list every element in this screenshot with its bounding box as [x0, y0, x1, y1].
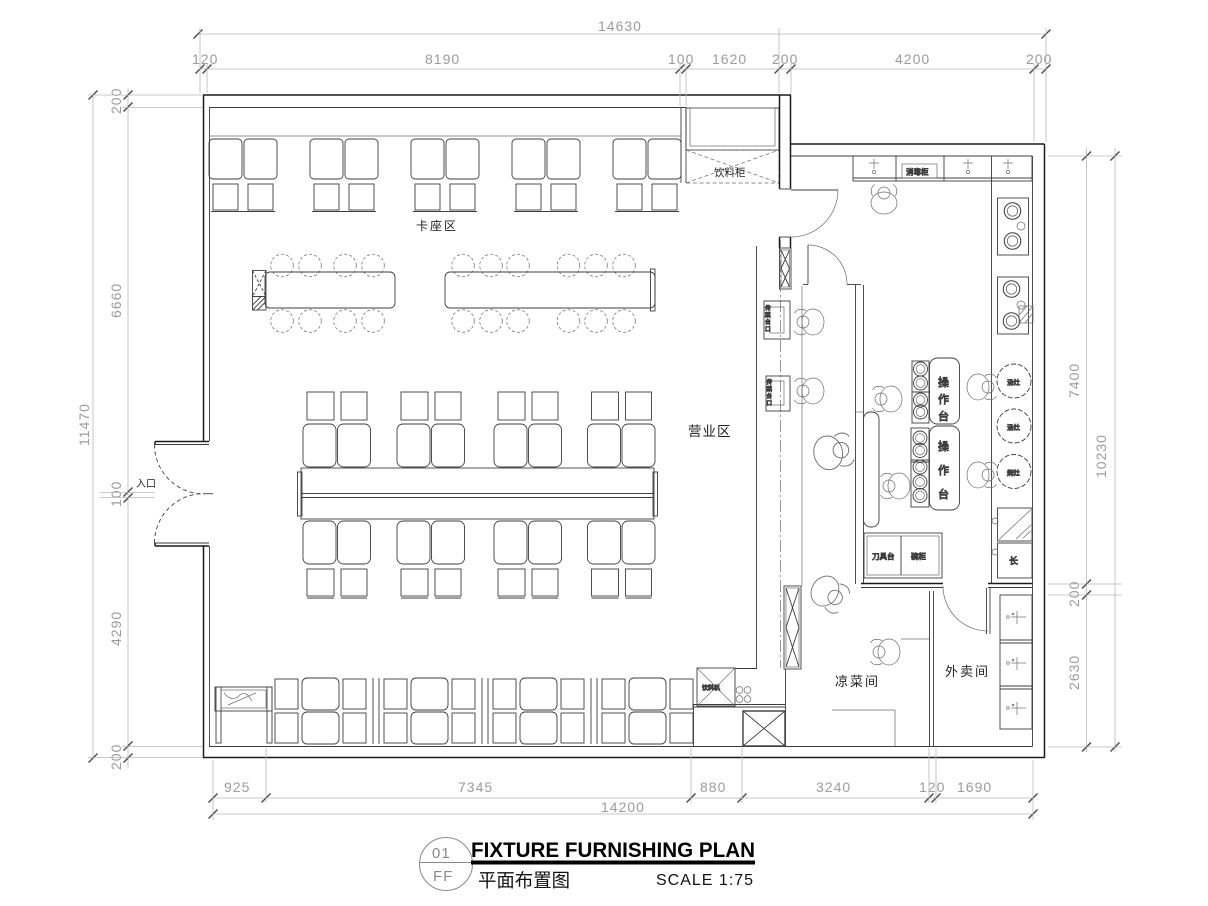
- svg-text:200: 200: [772, 51, 798, 67]
- svg-text:台: 台: [765, 318, 771, 326]
- svg-text:120: 120: [192, 51, 218, 67]
- svg-text:200: 200: [108, 744, 124, 770]
- svg-text:FIXTURE FURNISHING PLAN: FIXTURE FURNISHING PLAN: [471, 839, 755, 862]
- svg-text:凉菜间: 凉菜间: [835, 674, 880, 689]
- svg-text:7400: 7400: [1066, 363, 1082, 398]
- svg-text:作: 作: [938, 393, 949, 406]
- svg-text:操: 操: [938, 439, 949, 453]
- svg-text:200: 200: [108, 88, 124, 114]
- svg-text:100: 100: [108, 481, 124, 507]
- svg-text:菜: 菜: [767, 385, 773, 393]
- svg-text:200: 200: [1026, 51, 1052, 67]
- svg-text:操: 操: [938, 375, 949, 389]
- svg-text:入口: 入口: [136, 479, 156, 490]
- svg-text:SCALE 1:75: SCALE 1:75: [656, 872, 754, 889]
- svg-text:FF: FF: [433, 868, 453, 885]
- svg-text:14630: 14630: [598, 18, 642, 34]
- svg-text:3240: 3240: [816, 779, 851, 795]
- svg-text:台: 台: [938, 487, 949, 501]
- svg-text:平面布置图: 平面布置图: [478, 870, 570, 891]
- svg-text:925: 925: [224, 779, 250, 795]
- svg-text:传: 传: [765, 304, 771, 312]
- svg-text:焖灶: 焖灶: [1007, 468, 1021, 477]
- svg-text:营业区: 营业区: [688, 424, 732, 439]
- svg-text:8190: 8190: [425, 51, 460, 67]
- svg-text:传: 传: [767, 378, 773, 386]
- svg-text:汤灶: 汤灶: [1007, 423, 1021, 432]
- svg-text:消毒柜: 消毒柜: [906, 167, 929, 177]
- svg-text:880: 880: [700, 779, 726, 795]
- svg-text:碗柜: 碗柜: [911, 551, 926, 561]
- svg-text:100: 100: [668, 51, 694, 67]
- svg-text:饮料机: 饮料机: [702, 684, 720, 692]
- svg-text:7345: 7345: [458, 779, 493, 795]
- svg-text:200: 200: [1066, 581, 1082, 607]
- svg-text:台: 台: [767, 392, 773, 400]
- svg-text:外卖间: 外卖间: [945, 664, 990, 679]
- svg-text:刀具台: 刀具台: [872, 551, 895, 561]
- svg-text:01: 01: [432, 845, 451, 862]
- svg-text:汤灶: 汤灶: [1007, 378, 1021, 387]
- svg-text:台: 台: [938, 409, 949, 423]
- svg-text:10230: 10230: [1093, 434, 1109, 478]
- svg-text:作: 作: [938, 464, 949, 477]
- svg-text:卡座区: 卡座区: [416, 218, 458, 233]
- svg-text:4200: 4200: [895, 51, 930, 67]
- svg-text:4290: 4290: [108, 611, 124, 646]
- svg-text:14200: 14200: [601, 799, 645, 815]
- svg-text:1690: 1690: [957, 779, 992, 795]
- svg-text:11470: 11470: [76, 403, 92, 446]
- svg-text:菜: 菜: [765, 311, 771, 319]
- svg-text:口: 口: [765, 326, 771, 333]
- svg-text:饮料柜: 饮料柜: [714, 166, 746, 179]
- svg-text:口: 口: [767, 400, 773, 407]
- svg-text:2630: 2630: [1066, 655, 1082, 690]
- svg-text:6660: 6660: [108, 283, 124, 318]
- svg-text:1620: 1620: [712, 51, 747, 67]
- svg-text:长: 长: [1009, 555, 1018, 566]
- svg-text:120: 120: [919, 779, 945, 795]
